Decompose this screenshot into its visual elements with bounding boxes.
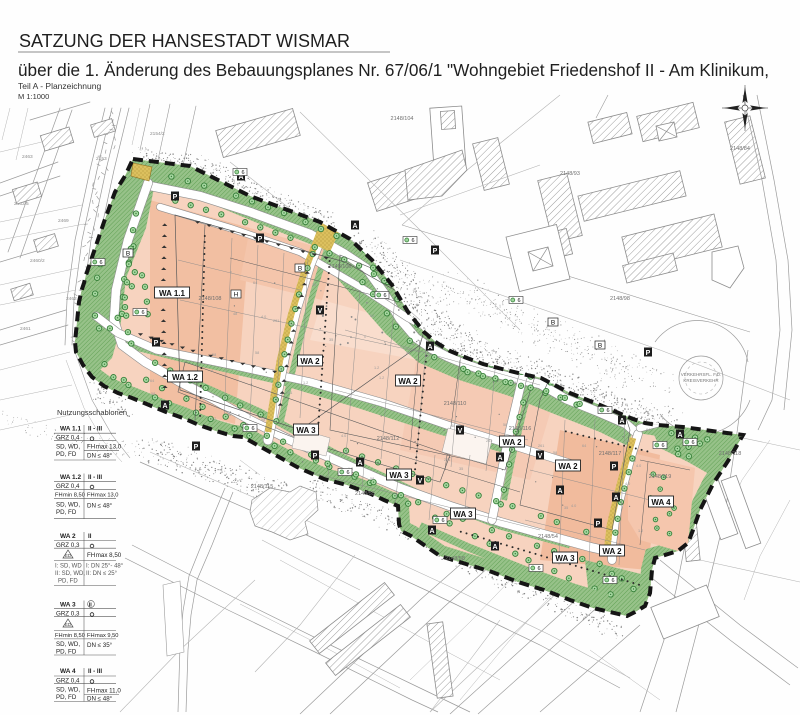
svg-text:35: 35 [459, 467, 463, 471]
svg-text:6: 6 [441, 518, 444, 524]
svg-text:2154/2: 2154/2 [150, 131, 165, 137]
svg-text:WA 3: WA 3 [296, 426, 316, 435]
svg-text:P: P [646, 350, 651, 357]
svg-text:2148/110: 2148/110 [444, 401, 467, 407]
svg-text:FH min 8,50: FH min 8,50 [55, 492, 85, 498]
svg-text:4.0: 4.0 [261, 315, 266, 319]
svg-text:A: A [357, 460, 362, 467]
svg-text:FH max 13,0: FH max 13,0 [87, 444, 122, 451]
svg-text:2148/58: 2148/58 [445, 556, 465, 562]
svg-text:261: 261 [286, 391, 292, 395]
svg-text:261: 261 [486, 439, 492, 443]
svg-text:II: DN ≤ 25°: II: DN ≤ 25° [86, 571, 118, 577]
svg-text:GRZ 0,4: GRZ 0,4 [56, 677, 80, 684]
svg-text:P: P [313, 453, 318, 460]
svg-text:261: 261 [444, 458, 450, 462]
svg-text:2148/98: 2148/98 [610, 296, 630, 302]
svg-text:PD, FD: PD, FD [58, 579, 78, 585]
svg-text:35: 35 [312, 283, 316, 287]
svg-text:WA 3: WA 3 [453, 510, 473, 519]
svg-text:DN ≤ 48°: DN ≤ 48° [87, 453, 113, 460]
svg-text:6: 6 [383, 293, 386, 299]
svg-text:35: 35 [329, 338, 333, 342]
svg-text:2148/54: 2148/54 [538, 534, 558, 540]
svg-text:6: 6 [241, 170, 244, 176]
svg-text:1.2: 1.2 [374, 366, 379, 370]
svg-text:A: A [497, 455, 502, 462]
svg-text:PD, FD: PD, FD [56, 649, 77, 656]
svg-text:2153: 2153 [96, 156, 107, 162]
svg-text:6: 6 [606, 408, 609, 414]
svg-text:64: 64 [646, 428, 650, 432]
svg-text:P: P [596, 521, 601, 528]
svg-text:2463: 2463 [22, 154, 33, 160]
svg-text:P: P [258, 236, 263, 243]
svg-text:II: SD, WD,: II: SD, WD, [55, 571, 85, 577]
svg-text:1.2: 1.2 [379, 376, 384, 380]
svg-text:DN ≤ 48°: DN ≤ 48° [87, 503, 113, 510]
svg-text:PD, FD: PD, FD [56, 509, 77, 516]
svg-text:V: V [318, 308, 323, 315]
svg-text:A: A [613, 495, 618, 502]
svg-text:6: 6 [691, 440, 694, 446]
svg-text:P: P [194, 444, 199, 451]
svg-text:WA 2: WA 2 [300, 357, 320, 366]
svg-text:WA 1.2: WA 1.2 [60, 474, 81, 481]
svg-text:6: 6 [517, 298, 520, 304]
svg-text:A: A [492, 544, 497, 551]
svg-text:M 1:1000: M 1:1000 [18, 92, 49, 101]
svg-text:P: P [612, 464, 617, 471]
svg-text:II - III: II - III [88, 474, 102, 481]
svg-text:WA 4: WA 4 [651, 498, 671, 507]
svg-text:WA 1.2: WA 1.2 [172, 373, 198, 382]
svg-text:II - III: II - III [88, 426, 102, 433]
svg-text:64: 64 [425, 354, 429, 358]
svg-text:x: x [364, 335, 366, 339]
svg-text:P: P [433, 248, 438, 255]
svg-text:SATZUNG DER HANSESTADT WISMAR: SATZUNG DER HANSESTADT WISMAR [19, 31, 350, 51]
svg-text:WA 2: WA 2 [60, 533, 76, 540]
svg-text:WA 4: WA 4 [60, 668, 76, 675]
svg-text:261: 261 [538, 444, 544, 448]
svg-text:Teil A - Planzeichnung: Teil A - Planzeichnung [18, 81, 101, 91]
svg-text:V: V [418, 478, 423, 485]
svg-text:WA 3: WA 3 [555, 554, 575, 563]
svg-text:Nutzungsschablonen: Nutzungsschablonen [57, 408, 127, 417]
svg-text:2148/115: 2148/115 [251, 484, 274, 490]
svg-text:2148/104: 2148/104 [391, 116, 414, 122]
svg-text:WA 2: WA 2 [602, 547, 622, 556]
svg-text:PD, FD: PD, FD [56, 451, 77, 458]
svg-text:2462: 2462 [66, 296, 77, 302]
svg-text:x: x [230, 270, 232, 274]
svg-text:58: 58 [370, 477, 374, 481]
svg-text:FH min 8,50: FH min 8,50 [55, 633, 85, 639]
svg-text:FH max 9,50: FH max 9,50 [87, 633, 118, 639]
svg-text:64: 64 [253, 281, 257, 285]
svg-text:WA 2: WA 2 [558, 462, 578, 471]
svg-text:x: x [211, 369, 213, 373]
svg-text:2148/119: 2148/119 [649, 474, 672, 480]
svg-text:58: 58 [212, 353, 216, 357]
svg-text:261: 261 [273, 319, 279, 323]
svg-text:6: 6 [661, 443, 664, 449]
svg-text:48: 48 [451, 424, 455, 428]
svg-text:x: x [634, 459, 636, 463]
svg-text:II: II [89, 602, 92, 608]
svg-text:FH max 11,0: FH max 11,0 [87, 688, 121, 695]
svg-text:über die 1. Änderung des Bebau: über die 1. Änderung des Bebauungsplanes… [18, 60, 769, 80]
svg-text:DN ≤ 35°: DN ≤ 35° [87, 642, 113, 649]
svg-text:SD, WD,: SD, WD, [56, 444, 80, 451]
svg-text:2148/118: 2148/118 [719, 451, 742, 457]
svg-text:WA 1.1: WA 1.1 [60, 426, 81, 433]
svg-text:58: 58 [261, 418, 265, 422]
svg-text:35: 35 [564, 506, 568, 510]
svg-text:6: 6 [141, 310, 144, 316]
svg-text:I: SD, WD: I: SD, WD [55, 564, 82, 570]
svg-text:WA 2: WA 2 [502, 438, 522, 447]
svg-text:A: A [162, 403, 167, 410]
svg-text:ED: ED [65, 622, 72, 627]
svg-text:A: A [427, 344, 432, 351]
svg-text:6: 6 [346, 470, 349, 476]
svg-text:B: B [598, 343, 602, 350]
svg-text:2148/93: 2148/93 [560, 171, 580, 177]
svg-text:KREISVERKEHR: KREISVERKEHR [683, 378, 719, 383]
svg-text:6: 6 [411, 238, 414, 244]
svg-text:H: H [234, 292, 239, 299]
svg-text:VERKEHRSFL. F.D.: VERKEHRSFL. F.D. [681, 372, 722, 377]
svg-text:P: P [154, 340, 159, 347]
svg-text:WA 3: WA 3 [389, 471, 409, 480]
svg-text:2469: 2469 [58, 218, 69, 224]
svg-text:I: DN 25°- 48°: I: DN 25°- 48° [86, 564, 124, 570]
svg-text:2148/117: 2148/117 [599, 451, 622, 457]
svg-text:58: 58 [553, 451, 557, 455]
svg-text:II - III: II - III [88, 668, 102, 675]
svg-text:6: 6 [611, 578, 614, 584]
svg-text:58: 58 [406, 351, 410, 355]
svg-text:2461: 2461 [20, 326, 31, 332]
svg-text:WA 3: WA 3 [60, 601, 76, 608]
svg-text:2148/106: 2148/106 [329, 264, 352, 270]
svg-text:GRZ 0,3: GRZ 0,3 [56, 610, 80, 617]
svg-text:64: 64 [150, 379, 154, 383]
svg-text:2148/108: 2148/108 [199, 296, 222, 302]
svg-text:64: 64 [582, 444, 586, 448]
svg-text:V: V [458, 428, 463, 435]
svg-text:1.2: 1.2 [625, 439, 630, 443]
svg-text:58: 58 [255, 351, 259, 355]
svg-text:2148/112: 2148/112 [377, 436, 400, 442]
svg-text:2460/2: 2460/2 [30, 258, 45, 264]
svg-text:PD, FD: PD, FD [56, 694, 77, 701]
svg-text:1.2: 1.2 [211, 417, 216, 421]
svg-text:B: B [551, 320, 555, 327]
svg-text:58: 58 [503, 423, 507, 427]
svg-text:A: A [429, 528, 434, 535]
svg-text:58: 58 [151, 392, 155, 396]
svg-text:2148/55: 2148/55 [355, 491, 375, 497]
svg-text:A: A [352, 223, 357, 230]
svg-text:64: 64 [372, 405, 376, 409]
svg-text:V: V [538, 453, 543, 460]
svg-text:SD, WD,: SD, WD, [56, 641, 80, 648]
svg-text:FH max 13,0: FH max 13,0 [87, 492, 118, 498]
svg-text:4.0: 4.0 [636, 464, 641, 468]
svg-text:B: B [298, 266, 302, 273]
svg-text:2148/116: 2148/116 [509, 426, 532, 432]
svg-text:II: II [88, 533, 92, 540]
svg-text:GRZ 0,3: GRZ 0,3 [56, 542, 80, 549]
svg-text:WA 2: WA 2 [398, 377, 418, 386]
svg-text:1.2: 1.2 [303, 381, 308, 385]
svg-text:64: 64 [370, 314, 374, 318]
svg-text:P: P [173, 194, 178, 201]
svg-text:48: 48 [233, 312, 237, 316]
svg-text:WA 1.1: WA 1.1 [159, 289, 185, 298]
svg-text:A: A [557, 488, 562, 495]
svg-text:35: 35 [512, 381, 516, 385]
svg-text:4.0: 4.0 [625, 482, 630, 486]
svg-text:B: B [126, 251, 130, 258]
svg-text:4.0: 4.0 [571, 504, 576, 508]
svg-text:6: 6 [99, 260, 102, 266]
svg-text:A: A [619, 418, 624, 425]
svg-text:SD, WD,: SD, WD, [56, 502, 80, 509]
svg-text:SD, WD,: SD, WD, [56, 687, 80, 694]
svg-text:6: 6 [537, 566, 540, 572]
svg-text:58: 58 [227, 413, 231, 417]
svg-text:A: A [677, 432, 682, 439]
svg-text:1.2: 1.2 [638, 529, 643, 533]
svg-text:4.0: 4.0 [341, 434, 346, 438]
svg-text:GRZ 0,4: GRZ 0,4 [56, 483, 80, 490]
svg-text:ED: ED [65, 553, 72, 558]
svg-text:2148/84: 2148/84 [730, 146, 750, 152]
svg-text:6: 6 [251, 426, 254, 432]
svg-text:FH max 8,50: FH max 8,50 [87, 552, 122, 559]
